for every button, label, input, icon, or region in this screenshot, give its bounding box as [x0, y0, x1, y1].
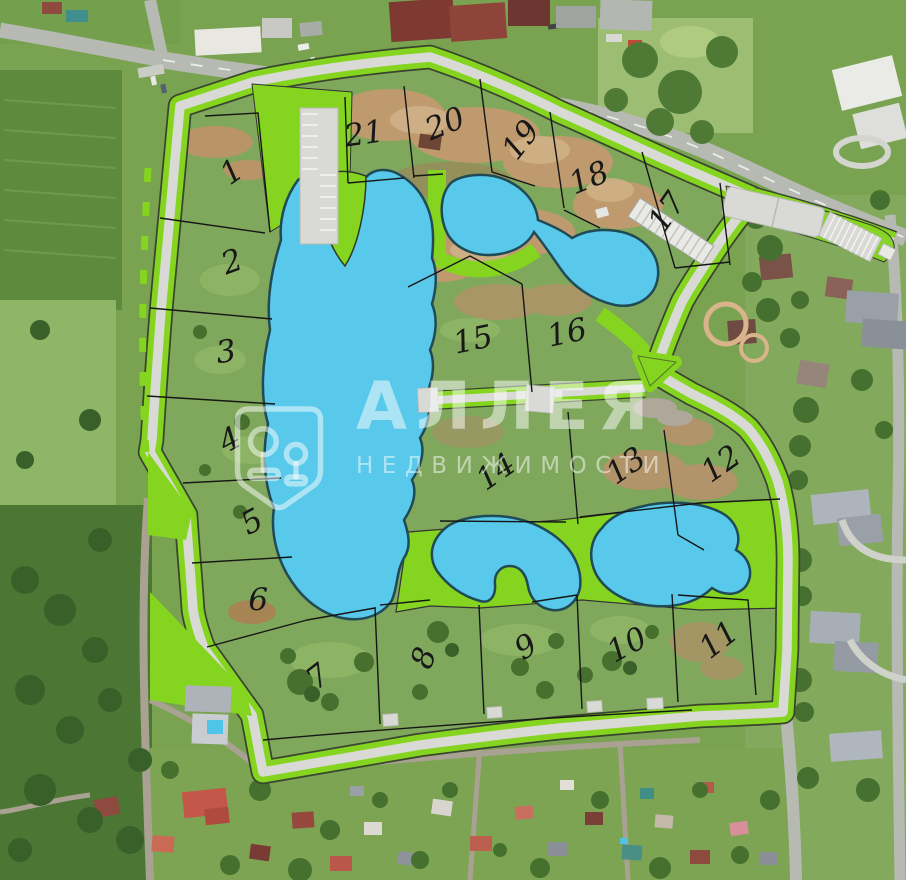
aerial-site-plan: 123456789101112131415161718192021 АЛЛЕЯ …	[0, 0, 906, 880]
southeast-pond	[591, 503, 750, 607]
parking-north	[300, 108, 338, 244]
site-plan-map	[0, 0, 906, 880]
